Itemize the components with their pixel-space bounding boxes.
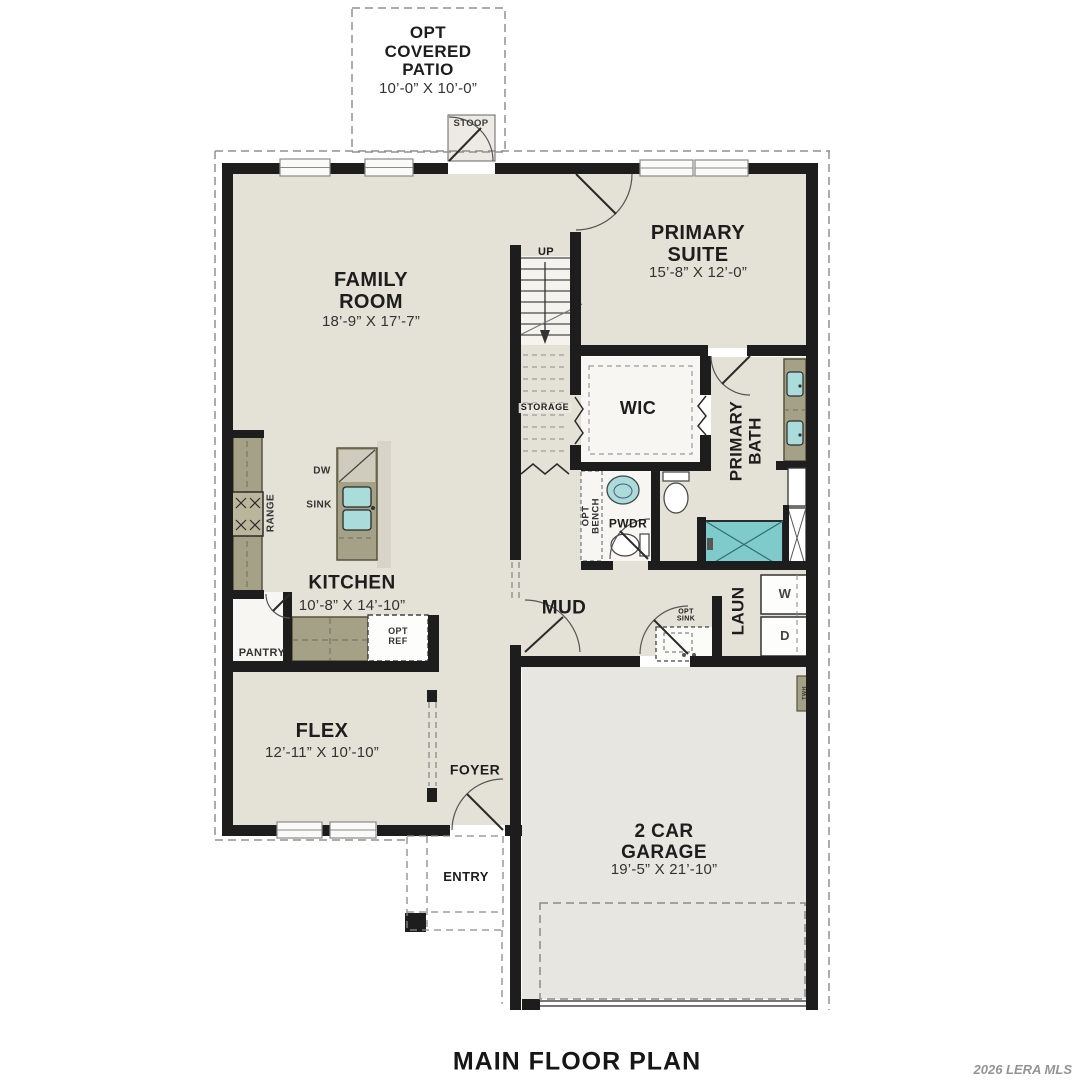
- flex-label: FLEX: [296, 720, 349, 742]
- up-label: UP: [538, 246, 554, 258]
- patio-label: OPT COVERED PATIO: [385, 24, 472, 80]
- family-room-label: FAMILY ROOM: [334, 269, 408, 313]
- storage-label: STORAGE: [519, 403, 572, 413]
- kitchen-label: KITCHEN: [308, 574, 395, 595]
- garage-label: 2 CAR GARAGE: [621, 822, 707, 864]
- garage-door: [540, 1001, 806, 1006]
- flex-dims: 12’-11” X 10’-10”: [265, 745, 379, 762]
- range-counter: [231, 430, 264, 592]
- powder-label: PWDR: [609, 517, 647, 530]
- kitchen-dims: 10’-8” X 14’-10”: [299, 598, 406, 615]
- window: [330, 822, 376, 838]
- powder-sink: [607, 476, 639, 504]
- range-label: RANGE: [266, 494, 277, 532]
- primary-suite-dims: 15’-8” X 12’-0”: [649, 265, 747, 282]
- mls-watermark: 2026 LERA MLS: [974, 1062, 1073, 1077]
- vanity-sink: [787, 372, 803, 396]
- bath-toilet: [663, 472, 689, 513]
- foyer-label: FOYER: [450, 762, 500, 777]
- entry-label: ENTRY: [443, 870, 489, 884]
- window: [280, 159, 330, 176]
- primary-bath-label: PRIMARY BATH: [727, 401, 764, 482]
- stoop-label: STOOP: [453, 119, 488, 129]
- wic-label: WIC: [620, 399, 656, 419]
- opt-bench-label: OPT BENCH: [582, 498, 603, 534]
- opt-ref-label: OPT REF: [388, 627, 408, 647]
- refrigerator-counter: [292, 617, 368, 661]
- bath-seat: [788, 508, 806, 568]
- porch-post: [405, 913, 426, 932]
- window: [695, 160, 748, 176]
- window: [640, 160, 693, 176]
- patio-dims: 10’-0” X 10’-0”: [379, 81, 477, 98]
- sink-label: SINK: [306, 500, 332, 511]
- dryer-label: D: [780, 629, 790, 643]
- primary-suite-label: PRIMARY SUITE: [651, 222, 745, 266]
- kitchen-sink-basin: [343, 510, 371, 530]
- twh-label: TWH: [802, 686, 808, 700]
- laundry-label: LAUN: [730, 587, 749, 636]
- kitchen-sink-basin: [343, 487, 371, 507]
- opt-sink-label: OPT SINK: [677, 609, 695, 624]
- window: [277, 822, 322, 838]
- floor-plan-drawing: [0, 0, 1080, 1080]
- mud-label: MUD: [542, 599, 586, 620]
- family-room-dims: 18’-9” X 17’-7”: [322, 314, 420, 331]
- vanity-sink: [787, 421, 803, 445]
- pantry-label: PANTRY: [239, 647, 285, 659]
- plan-title: MAIN FLOOR PLAN: [453, 1048, 701, 1077]
- window: [365, 159, 413, 176]
- kitchen-island: [337, 441, 391, 568]
- linen-cabinet: [788, 468, 806, 506]
- floor-plan-page: OPT COVERED PATIO 10’-0” X 10’-0” STOOP …: [0, 0, 1080, 1080]
- garage-dims: 19’-5” X 21’-10”: [611, 862, 718, 879]
- shower: [705, 521, 783, 568]
- shower-head: [707, 538, 713, 550]
- dw-label: DW: [313, 466, 330, 477]
- washer-label: W: [779, 587, 792, 601]
